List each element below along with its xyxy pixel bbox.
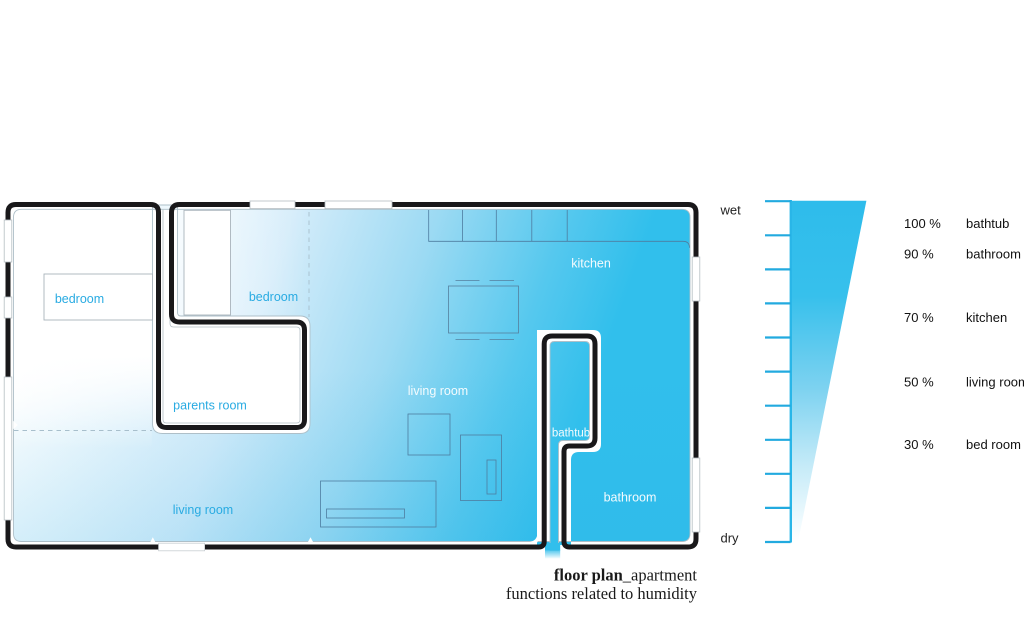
svg-text:living room: living room (408, 384, 468, 398)
svg-text:bedroom: bedroom (249, 290, 298, 304)
svg-text:bathroom: bathroom (604, 491, 657, 505)
svg-text:living room: living room (173, 503, 233, 517)
svg-text:50 %: 50 % (904, 375, 934, 390)
svg-text:30 %: 30 % (904, 437, 934, 452)
svg-text:wet: wet (720, 203, 742, 218)
svg-text:floor plan_apartment: floor plan_apartment (554, 566, 698, 585)
svg-text:bed room: bed room (966, 437, 1021, 452)
svg-text:bathtub: bathtub (966, 216, 1009, 231)
svg-text:bathtub: bathtub (552, 428, 590, 440)
svg-text:functions related to humidity: functions related to humidity (506, 584, 698, 603)
svg-text:kitchen: kitchen (966, 310, 1007, 325)
svg-text:dry: dry (721, 531, 740, 546)
svg-text:70 %: 70 % (904, 310, 934, 325)
svg-text:parents room: parents room (173, 399, 247, 413)
svg-text:bedroom: bedroom (55, 292, 104, 306)
svg-text:100 %: 100 % (904, 216, 941, 231)
svg-text:90 %: 90 % (904, 247, 934, 262)
svg-text:bathroom: bathroom (966, 247, 1021, 262)
svg-text:living room: living room (966, 375, 1024, 390)
svg-text:kitchen: kitchen (571, 257, 611, 271)
